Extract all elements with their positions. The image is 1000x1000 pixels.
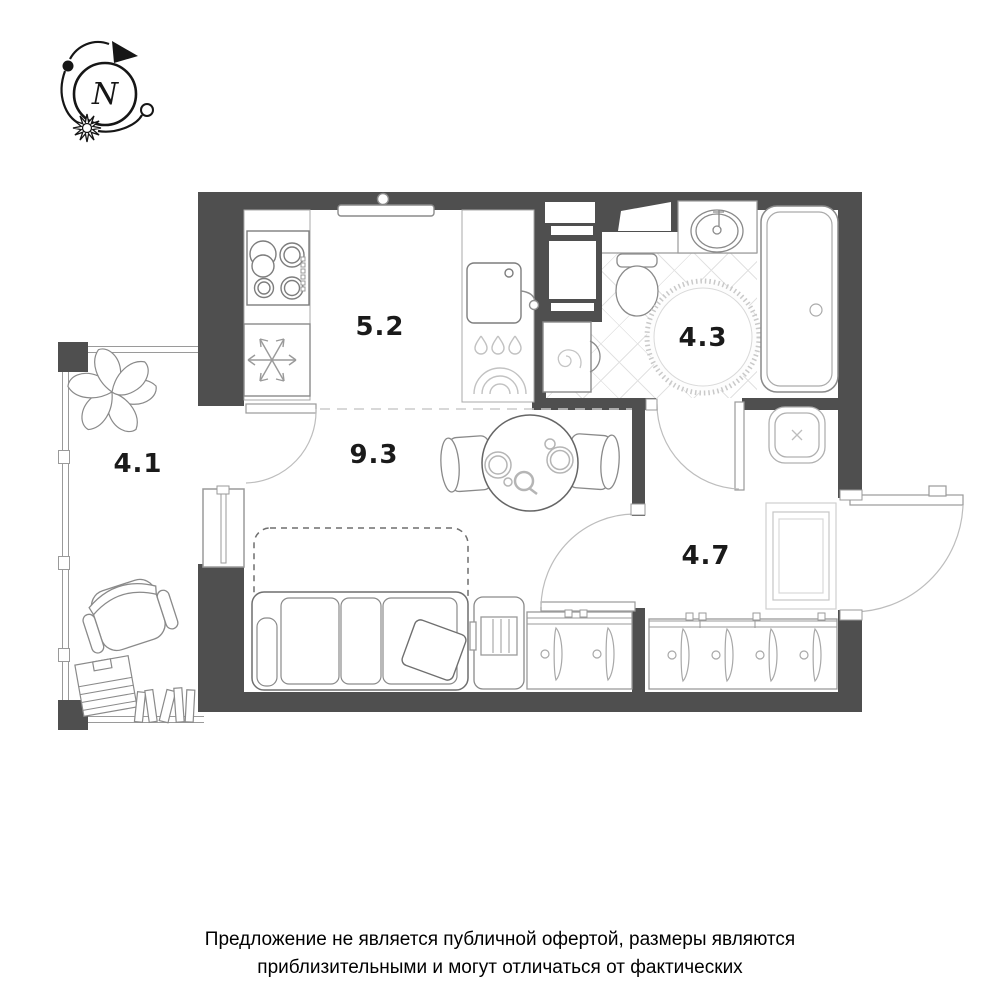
- stool-icon: [769, 407, 825, 463]
- bathtub-icon: [761, 206, 838, 392]
- balcony-window: [203, 486, 244, 567]
- room-label-hallway: 4.7: [681, 541, 730, 571]
- tv-stand-icon: [470, 597, 524, 689]
- dining-table-icon: [482, 415, 578, 511]
- compass-arrow-icon: [112, 41, 138, 63]
- cooker-hood-icon: [338, 194, 434, 217]
- room-label-kitchen: 5.2: [355, 312, 404, 342]
- hall-mirror-icon: [766, 503, 836, 609]
- floor-plan: N: [0, 0, 1000, 1000]
- plant-icon: [66, 346, 156, 437]
- bathroom-sink-icon: [691, 210, 743, 252]
- sofa-bed-icon: [252, 528, 468, 690]
- disclaimer-line-2: приблизительными и могут отличаться от ф…: [0, 954, 1000, 982]
- disclaimer-line-1: Предложение не является публичной оферто…: [0, 926, 1000, 954]
- washing-machine-icon: [543, 322, 600, 392]
- compass-north-label: N: [91, 77, 120, 112]
- duct-shaft: [545, 202, 596, 311]
- disclaimer: Предложение не является публичной оферто…: [0, 926, 1000, 982]
- compass: N: [62, 41, 153, 142]
- fridge-icon: [244, 324, 310, 396]
- crate-icon: [75, 656, 137, 717]
- books-icon: [134, 688, 194, 723]
- toilet-icon: [616, 254, 658, 316]
- armchair-icon: [76, 572, 181, 659]
- room-label-balcony: 4.1: [113, 449, 162, 479]
- room-label-living: 9.3: [349, 440, 398, 470]
- balcony-door: [246, 404, 316, 483]
- bathroom-door: [646, 399, 744, 490]
- room-label-bathroom: 4.3: [678, 323, 727, 353]
- hallway-door: [541, 504, 645, 611]
- stove-icon: [247, 231, 309, 305]
- hall-wardrobe: [649, 613, 837, 689]
- vent-shaft-icon: [618, 202, 671, 231]
- floor-plan-linework: N: [0, 0, 1000, 1000]
- living-wardrobe: [527, 610, 632, 689]
- dining-set: [439, 415, 621, 511]
- compass-dot: [63, 61, 74, 72]
- compass-ring: [141, 104, 153, 116]
- entry-door: [840, 486, 963, 620]
